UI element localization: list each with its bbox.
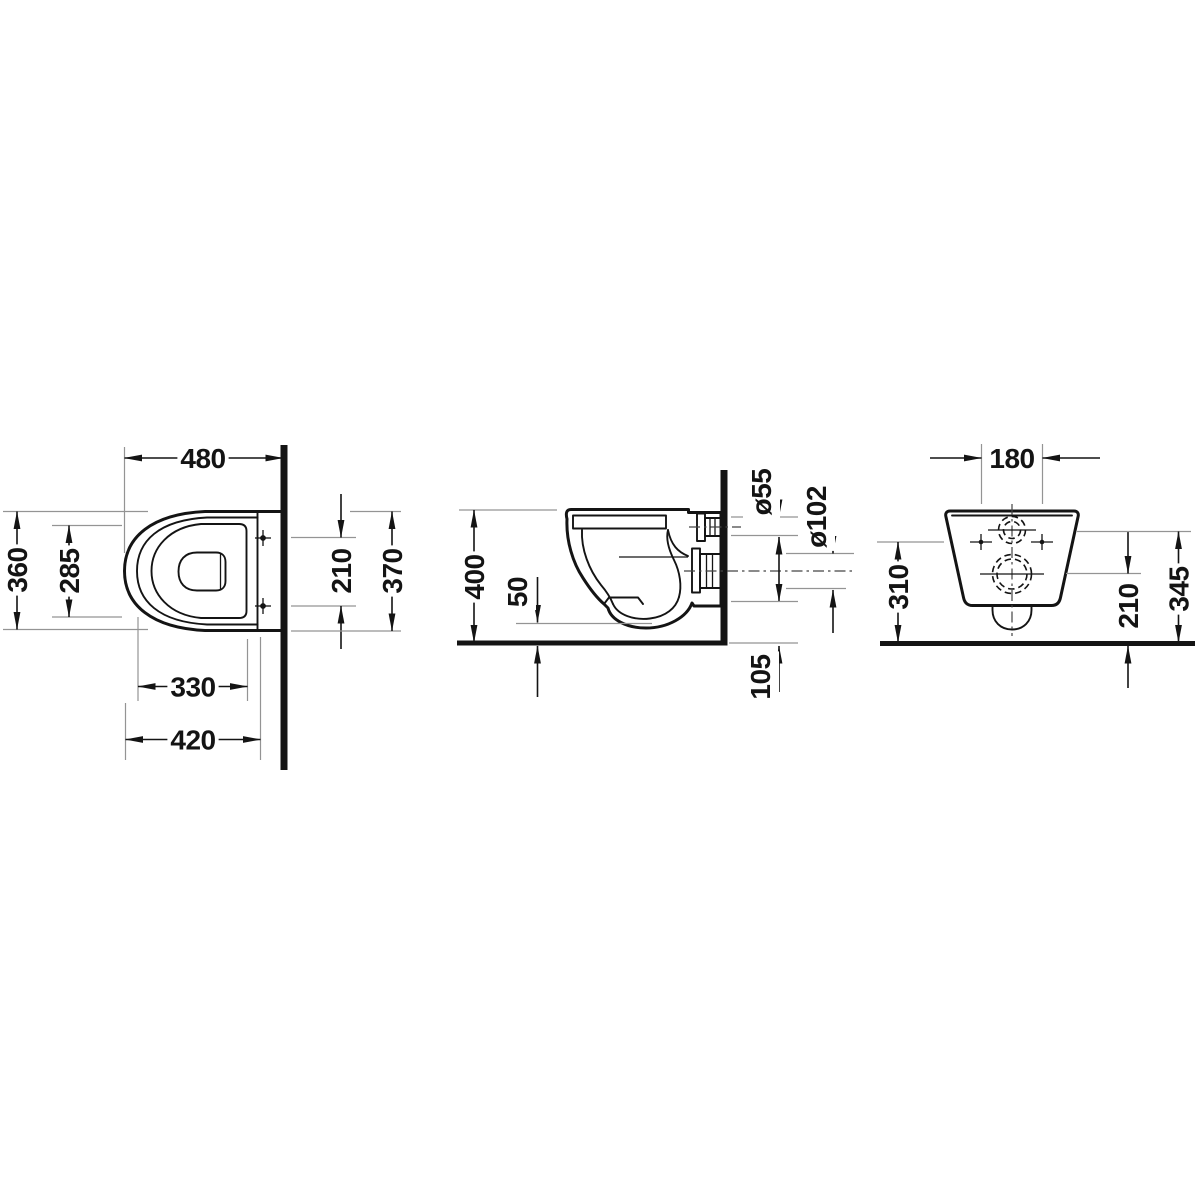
svg-text:50: 50 [502, 577, 533, 607]
bowl-sump [613, 597, 679, 619]
seat-lid-outline [137, 518, 258, 625]
dim-210-outlet-height: 210 [1110, 580, 1147, 631]
seat-inner-ring [152, 524, 247, 618]
dim-50-clearance: 50 [499, 574, 536, 610]
seat-section [573, 516, 666, 529]
dim-420-seat-length: 420 [167, 722, 218, 759]
dim-105-outlet-bottom-height: 105 [742, 651, 779, 702]
side-view-section: 400 50 ø55 ø102 105 [456, 466, 856, 703]
svg-text:105: 105 [745, 654, 776, 699]
svg-text:370: 370 [377, 548, 408, 593]
svg-text:ø55: ø55 [746, 469, 777, 516]
svg-text:ø102: ø102 [801, 486, 832, 548]
dim-102-outlet-diameter: ø102 [798, 483, 835, 551]
svg-text:480: 480 [180, 443, 225, 474]
dim-330-inner-length: 330 [167, 669, 218, 706]
dim-180-bolt-spacing: 180 [986, 440, 1037, 477]
svg-text:400: 400 [459, 554, 490, 599]
mounting-hole-marker [1031, 534, 1053, 550]
svg-text:420: 420 [170, 725, 215, 756]
trap-curve [667, 530, 680, 597]
svg-text:180: 180 [989, 443, 1034, 474]
dim-360-width: 360 [0, 544, 36, 595]
top-view-plan: 480 360 285 210 370 [0, 440, 411, 770]
mounting-hole-marker [970, 534, 992, 550]
svg-text:210: 210 [1113, 583, 1144, 628]
bowl-drain-outline [179, 553, 226, 591]
svg-text:360: 360 [2, 547, 33, 592]
technical-drawing-canvas: 480 360 285 210 370 [0, 0, 1200, 1200]
dim-400-rim-height: 400 [456, 551, 493, 602]
svg-text:345: 345 [1164, 566, 1195, 611]
dim-55-inlet-diameter: ø55 [743, 466, 780, 519]
dim-210-bolt-spacing-top: 210 [323, 545, 360, 596]
dim-345-inlet-height: 345 [1161, 563, 1198, 614]
bowl-inner-front [582, 530, 613, 604]
dim-285-seat-inner-width: 285 [51, 545, 88, 596]
svg-text:210: 210 [326, 548, 357, 593]
rear-view: 180 310 210 345 [877, 440, 1198, 688]
dim-480-depth: 480 [177, 440, 228, 477]
svg-text:310: 310 [883, 564, 914, 609]
dim-370-pan-width: 370 [374, 545, 411, 596]
dim-310-bolt-height: 310 [880, 561, 917, 612]
svg-text:330: 330 [170, 672, 215, 703]
svg-text:285: 285 [54, 548, 85, 593]
